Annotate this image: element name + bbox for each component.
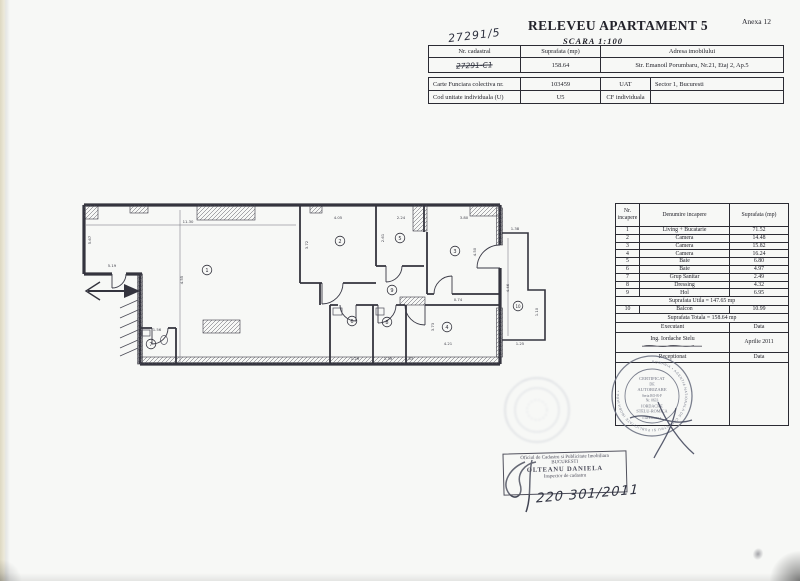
room-number: 6 bbox=[350, 319, 353, 325]
adresa-cell: Str. Emanoil Porumbaru, Nr.21, Etaj 2, A… bbox=[601, 58, 784, 73]
room-nr: 4 bbox=[616, 250, 640, 258]
certification-stamp: ROMANIA • AGENTIA NATIONALA DE CADASTRU … bbox=[612, 356, 692, 436]
cf-row-2: Cod unitate individuala (U) U5 CF indivi… bbox=[429, 91, 784, 104]
cadastral-table: Nr. cadastral Suprafata (mp) Adresa imob… bbox=[428, 45, 784, 73]
dimension-labels: 11.305.675.194.554.053.722.242.613.804.5… bbox=[87, 215, 539, 361]
dimension-label: 1.29 bbox=[351, 356, 360, 361]
dimension-label: 11.30 bbox=[183, 219, 194, 224]
room-row: 5Baie6.80 bbox=[616, 258, 789, 266]
useful-area-row: Suprafata Utila = 147.65 mp bbox=[616, 297, 789, 306]
cf-individuala-value bbox=[651, 91, 784, 104]
stamp-line-certificat: CERTIFICAT bbox=[639, 376, 665, 381]
dimension-label: 4.55 bbox=[179, 275, 184, 284]
room-number: 2 bbox=[338, 239, 341, 245]
cf-colectiva-value: 103459 bbox=[521, 78, 601, 91]
door-arcs bbox=[112, 245, 500, 344]
total-area: Suprafata Totala = 158.64 mp bbox=[616, 313, 789, 322]
room-nr: 2 bbox=[616, 234, 640, 242]
executant-date: Aprilie 2011 bbox=[730, 332, 789, 352]
balcony-area: 10.99 bbox=[730, 306, 789, 314]
room-area: 15.82 bbox=[730, 242, 789, 250]
uat-value: Sector 1, Bucuresti bbox=[651, 78, 784, 91]
room-nr: 8 bbox=[616, 281, 640, 289]
room-area: 71.52 bbox=[730, 227, 789, 235]
room-area: 6.80 bbox=[730, 258, 789, 266]
cadastral-header-row: Nr. cadastral Suprafata (mp) Adresa imob… bbox=[429, 46, 784, 58]
struck-out-scribble bbox=[642, 343, 704, 349]
col-adresa: Adresa imobilului bbox=[601, 46, 784, 58]
room-row: 8Dressing4.32 bbox=[616, 281, 789, 289]
scanned-document-page: Anexa 12 RELEVEU APARTAMENT 5 SCARA 1:10… bbox=[0, 0, 800, 581]
header-denumire: Denumire incapere bbox=[640, 204, 730, 227]
room-area: 4.97 bbox=[730, 265, 789, 273]
pencil-smudge bbox=[750, 545, 766, 562]
stamp-serial-nr: Nr. 0633 bbox=[646, 399, 659, 403]
col-suprafata: Suprafata (mp) bbox=[521, 46, 601, 58]
stamp-line-de: DE bbox=[649, 382, 655, 387]
room-name: Camera bbox=[640, 250, 730, 258]
balcony-name: Balcon bbox=[640, 306, 730, 314]
dimension-label: 0.83 bbox=[405, 356, 414, 361]
executant-label-row: Executant Data bbox=[616, 322, 789, 332]
cf-colectiva-label: Carte Funciara colectiva nr. bbox=[429, 78, 521, 91]
carte-funciara-table: Carte Funciara colectiva nr. 103459 UAT … bbox=[428, 77, 784, 104]
nr-cadastral-cell: 27291-C1 bbox=[429, 58, 521, 73]
dimension-label: 3.73 bbox=[430, 322, 435, 331]
balcony-nr: 10 bbox=[616, 306, 640, 314]
header-suprafata: Suprafata (mp) bbox=[730, 204, 789, 227]
executant-name: Ing. Iordache Stelu bbox=[650, 336, 694, 342]
room-number: 5 bbox=[398, 236, 401, 242]
useful-area: Suprafata Utila = 147.65 mp bbox=[616, 297, 789, 306]
stamp-area-data-cell bbox=[730, 362, 789, 425]
dimension-label: 4.21 bbox=[444, 341, 453, 346]
handwritten-nr-cadastral: 27291-C1 bbox=[456, 60, 493, 70]
dimension-label: 0.74 bbox=[454, 297, 463, 302]
room-row: 7Grup Sanitar2.49 bbox=[616, 273, 789, 281]
dimension-label: 3.72 bbox=[304, 240, 309, 249]
cod-unitate-label: Cod unitate individuala (U) bbox=[429, 91, 521, 104]
room-number: 10 bbox=[515, 304, 521, 309]
room-number: 3 bbox=[453, 249, 456, 255]
dimension-label: 1.38 bbox=[511, 226, 520, 231]
dimension-label: 5.19 bbox=[108, 263, 117, 268]
stamp-serial: Seria RO-B-F bbox=[642, 394, 662, 398]
room-name: Baie bbox=[640, 265, 730, 273]
dimension-label: 1.25 bbox=[516, 341, 525, 346]
balcony-row: 10 Balcon 10.99 bbox=[616, 306, 789, 314]
room-number-labels: 12345678910 bbox=[146, 233, 523, 349]
dimension-label: 1.39 bbox=[384, 356, 393, 361]
room-nr: 6 bbox=[616, 265, 640, 273]
room-number: 7 bbox=[149, 342, 152, 348]
dimension-label: 4.46 bbox=[505, 283, 510, 292]
total-area-row: Suprafata Totala = 158.64 mp bbox=[616, 313, 789, 322]
cf-individuala-label: CF individuala bbox=[601, 91, 651, 104]
suprafata-cell: 158.64 bbox=[521, 58, 601, 73]
room-row: 3Camera15.82 bbox=[616, 242, 789, 250]
room-nr: 7 bbox=[616, 273, 640, 281]
faint-round-stamp bbox=[505, 378, 569, 442]
receptionat-data-label: Data bbox=[730, 352, 789, 362]
room-name: Grup Sanitar bbox=[640, 273, 730, 281]
room-area: 2.49 bbox=[730, 273, 789, 281]
dimension-label: 1.10 bbox=[534, 307, 539, 316]
room-name: Camera bbox=[640, 234, 730, 242]
page-left-edge bbox=[0, 0, 10, 581]
room-area: 16.24 bbox=[730, 250, 789, 258]
room-name: Baie bbox=[640, 258, 730, 266]
dimension-label: 2.61 bbox=[380, 233, 385, 242]
rooms-body: 1Living + Bucatarie71.522Camera14.483Cam… bbox=[616, 227, 789, 297]
rooms-header-row: Nr. incapere Denumire incapere Suprafata… bbox=[616, 204, 789, 227]
wall-hatching bbox=[84, 205, 503, 364]
room-area: 4.32 bbox=[730, 281, 789, 289]
room-row: 1Living + Bucatarie71.52 bbox=[616, 227, 789, 235]
room-name: Living + Bucatarie bbox=[640, 227, 730, 235]
entrance-arrow bbox=[86, 282, 140, 300]
cadastral-value-row: 27291-C1 158.64 Str. Emanoil Porumbaru, … bbox=[429, 58, 784, 73]
room-row: 4Camera16.24 bbox=[616, 250, 789, 258]
cf-row-1: Carte Funciara colectiva nr. 103459 UAT … bbox=[429, 78, 784, 91]
room-area: 14.48 bbox=[730, 234, 789, 242]
dimension-label: 4.50 bbox=[472, 247, 477, 256]
room-name: Camera bbox=[640, 242, 730, 250]
room-number: 4 bbox=[445, 325, 448, 331]
corner-shadow-right bbox=[770, 551, 800, 581]
executant-data-label: Data bbox=[730, 322, 789, 332]
room-number: 1 bbox=[205, 268, 208, 274]
cod-unitate-value: U5 bbox=[521, 91, 601, 104]
room-area: 6.95 bbox=[730, 289, 789, 297]
room-nr: 5 bbox=[616, 258, 640, 266]
dimension-label: 1.56 bbox=[153, 327, 162, 332]
room-number: 8 bbox=[385, 320, 388, 326]
stamp-line-autorizare: AUTORIZARE bbox=[637, 387, 666, 392]
dimension-label: 4.05 bbox=[334, 215, 343, 220]
room-row: 2Camera14.48 bbox=[616, 234, 789, 242]
room-row: 9Hol6.95 bbox=[616, 289, 789, 297]
corner-shadow-left bbox=[0, 559, 22, 581]
uat-label: UAT bbox=[601, 78, 651, 91]
room-name: Dressing bbox=[640, 281, 730, 289]
room-number: 9 bbox=[390, 288, 393, 294]
col-nr-cadastral: Nr. cadastral bbox=[429, 46, 521, 58]
room-nr: 3 bbox=[616, 242, 640, 250]
room-nr: 9 bbox=[616, 289, 640, 297]
bathroom-fixtures bbox=[142, 308, 384, 345]
scan-shadow bbox=[0, 573, 800, 581]
dimension-label: 2.24 bbox=[397, 215, 406, 220]
stairwell-hatching bbox=[120, 300, 138, 356]
dimension-label: 5.67 bbox=[87, 235, 92, 244]
room-name: Hol bbox=[640, 289, 730, 297]
dimension-label: 3.80 bbox=[460, 215, 469, 220]
room-row: 6Baie4.97 bbox=[616, 265, 789, 273]
room-nr: 1 bbox=[616, 227, 640, 235]
header-nr-incapere: Nr. incapere bbox=[616, 204, 640, 227]
executant-label: Executant bbox=[616, 322, 730, 332]
outer-walls bbox=[84, 205, 500, 364]
